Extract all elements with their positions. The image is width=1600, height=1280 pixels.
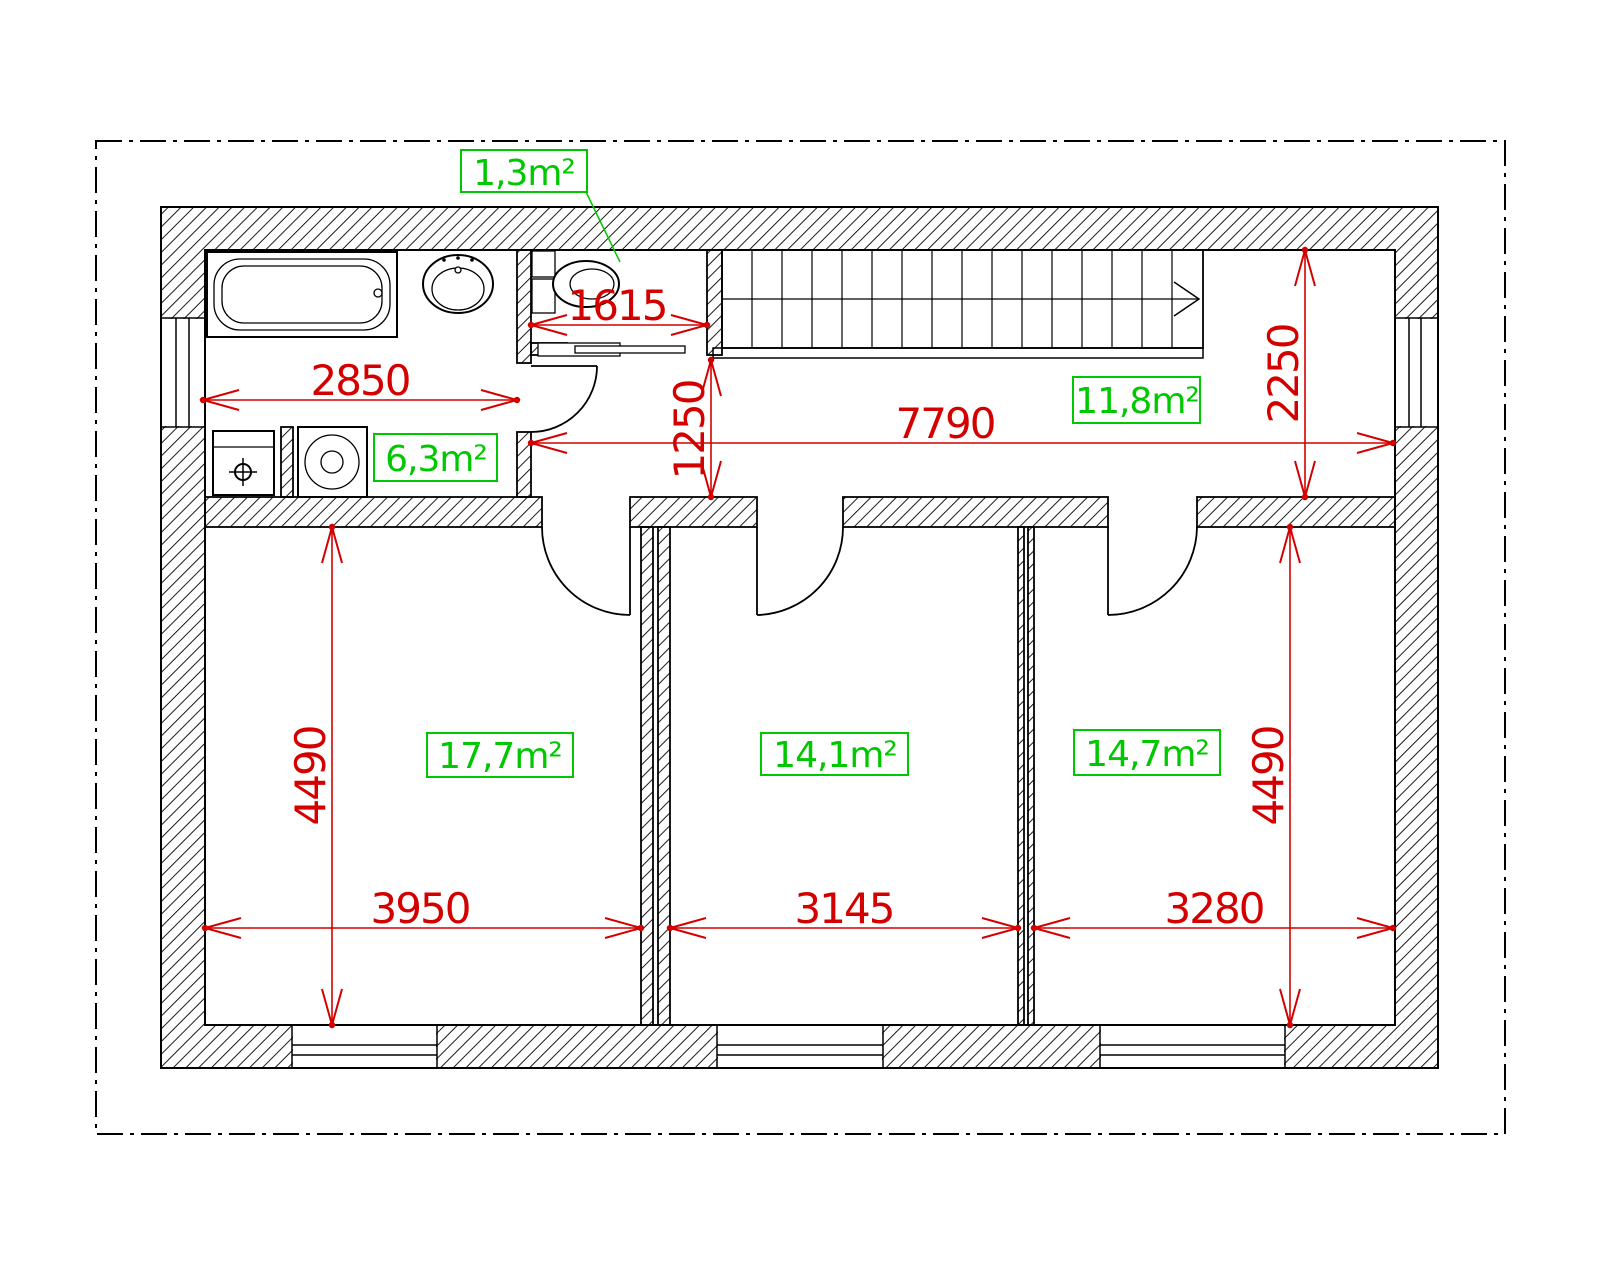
dimension-text-bedroom-right-depth: 4490: [1244, 727, 1293, 826]
wall-corridor-south-middle: [843, 497, 1108, 527]
dimension-text-hall-width: 7790: [896, 399, 995, 448]
dimension-text-bedroom-left-depth: 4490: [286, 727, 335, 826]
area-label-hall: 11,8m²: [1073, 377, 1200, 423]
area-label-bedroom-left: 17,7m²: [427, 733, 573, 777]
floor-plan-canvas: 2850 1615 7790 1250 2250 4490 4490 3950: [0, 0, 1600, 1280]
dimension-text-bedroom-left-width: 3950: [371, 884, 470, 933]
wall-bathroom-door-pier: [517, 432, 531, 497]
wall-wc-right: [707, 250, 722, 355]
area-text-wc: 1,3m²: [473, 153, 575, 194]
dimension-text-bedroom-right-width: 3280: [1165, 884, 1264, 933]
area-label-bedroom-middle: 14,1m²: [761, 733, 908, 776]
window-bedroom-middle: [717, 1025, 883, 1068]
bathtub-icon: [207, 252, 397, 337]
wall-bedroom23-b: [1028, 527, 1034, 1025]
dimension-text-hall-depth: 2250: [1259, 325, 1308, 424]
washing-machine-icon: [298, 427, 367, 497]
dimension-text-bedroom-middle-width: 3145: [795, 884, 894, 933]
wall-shower-pier: [281, 427, 293, 497]
washbasin-icon: [423, 255, 493, 313]
window-left-wall: [161, 318, 205, 427]
area-text-bedroom-middle: 14,1m²: [773, 735, 897, 776]
wall-bathroom-wc: [517, 250, 531, 363]
wall-bedroom12-b: [658, 527, 670, 1025]
wall-corridor-south-left: [205, 497, 542, 527]
area-text-bathroom: 6,3m²: [385, 439, 487, 480]
dimension-corridor-width: 1250: [665, 360, 714, 497]
wall-corridor-south-tee: [630, 497, 757, 527]
page-background: [0, 0, 1600, 1280]
dimension-text-corridor-width: 1250: [665, 381, 714, 480]
wall-bedroom23-a: [1018, 527, 1024, 1025]
area-label-bedroom-right: 14,7m²: [1074, 730, 1220, 775]
shower-tray-icon: [213, 431, 274, 495]
area-text-bedroom-left: 17,7m²: [438, 736, 562, 777]
wall-bedroom12-a: [641, 527, 653, 1025]
area-text-bedroom-right: 14,7m²: [1085, 734, 1209, 775]
window-bedroom-left: [292, 1025, 437, 1068]
dimension-text-bathroom-width: 2850: [311, 356, 410, 405]
floor-plan-drawing: 2850 1615 7790 1250 2250 4490 4490 3950: [0, 0, 1600, 1280]
window-right-wall: [1395, 318, 1438, 427]
dimension-text-wc-width: 1615: [568, 281, 667, 330]
window-bedroom-right: [1100, 1025, 1285, 1068]
area-text-hall: 11,8m²: [1075, 381, 1199, 422]
wall-corridor-south-right: [1197, 497, 1395, 527]
area-label-bathroom: 6,3m²: [374, 434, 497, 481]
